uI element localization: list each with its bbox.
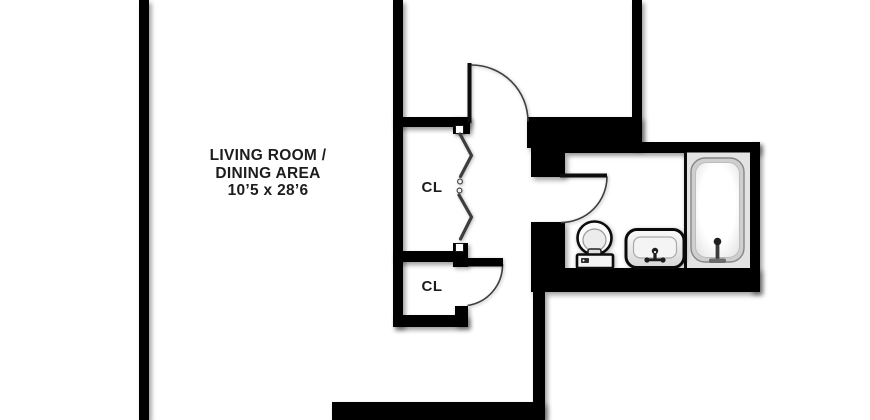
floor-plan: LIVING ROOM / DINING AREA 10’5 x 28’6 CL… [0,0,870,420]
closet-top-label: CL [402,179,462,196]
toilet-icon [577,222,613,269]
living-room-label: LIVING ROOM / DINING AREA 10’5 x 28’6 [148,147,388,200]
door-bathroom [560,174,607,223]
living-room-name-line2: DINING AREA [148,165,388,183]
doors-and-fixtures-layer [0,0,870,420]
door-top-room [468,63,529,123]
door-closet-bottom [466,258,503,306]
closet-bottom-label: CL [402,278,462,295]
sink-icon [626,230,684,268]
living-room-name-line1: LIVING ROOM / [148,147,388,165]
bathtub-icon [684,152,750,268]
living-room-dimensions: 10’5 x 28’6 [148,182,388,200]
